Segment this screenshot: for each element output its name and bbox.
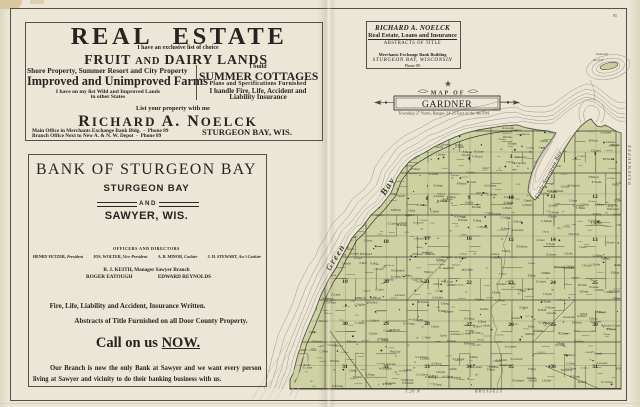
svg-text:R.Young: R.Young xyxy=(455,255,466,259)
svg-text:G.Fuller: G.Fuller xyxy=(466,171,475,174)
svg-text:F.Meyer: F.Meyer xyxy=(595,202,605,206)
svg-text:O.Lund: O.Lund xyxy=(354,257,362,260)
svg-text:G.Fuller: G.Fuller xyxy=(573,204,585,208)
svg-text:Wm.Gray: Wm.Gray xyxy=(515,155,528,159)
svg-text:M.Birch: M.Birch xyxy=(575,340,584,343)
svg-text:D.Ames: D.Ames xyxy=(350,252,360,256)
svg-text:T.Ryan: T.Ryan xyxy=(475,297,484,301)
svg-text:MAP OF: MAP OF xyxy=(431,90,466,96)
svg-text:Wm.Gray: Wm.Gray xyxy=(441,279,453,283)
svg-text:L.Marsh: L.Marsh xyxy=(490,256,501,260)
svg-text:D.Ames: D.Ames xyxy=(546,252,557,256)
svg-text:B.Frank: B.Frank xyxy=(580,290,589,293)
svg-text:D.Ames: D.Ames xyxy=(439,267,447,270)
svg-text:15: 15 xyxy=(508,237,514,243)
svg-text:C.Hahn: C.Hahn xyxy=(503,206,513,210)
svg-text:P.Nelson: P.Nelson xyxy=(457,183,467,186)
svg-text:B.Frank: B.Frank xyxy=(578,284,587,287)
svg-text:J.Doyle: J.Doyle xyxy=(369,332,379,336)
svg-text:D.Ames: D.Ames xyxy=(581,367,589,370)
svg-text:30: 30 xyxy=(592,322,598,328)
svg-text:E.Berg: E.Berg xyxy=(441,303,449,306)
svg-text:E.Stone: E.Stone xyxy=(503,130,512,133)
svg-text:C.Webb: C.Webb xyxy=(297,348,308,352)
svg-text:B.Frank: B.Frank xyxy=(310,231,320,234)
svg-text:33: 33 xyxy=(424,364,430,370)
svg-text:31: 31 xyxy=(342,364,348,370)
svg-text:S.Carlson: S.Carlson xyxy=(601,380,613,384)
svg-text:F.Meyer: F.Meyer xyxy=(412,168,421,171)
svg-text:N.Holt: N.Holt xyxy=(370,262,378,265)
svg-text:O.Lund: O.Lund xyxy=(511,317,520,320)
svg-text:G.Fuller: G.Fuller xyxy=(561,186,570,189)
svg-text:E.Stone: E.Stone xyxy=(546,243,555,246)
svg-text:A.Olson: A.Olson xyxy=(577,314,587,318)
svg-text:G.Fuller: G.Fuller xyxy=(336,145,346,149)
svg-text:40: 40 xyxy=(303,215,306,218)
svg-text:M.Birch: M.Birch xyxy=(390,328,401,332)
svg-text:A.Olson: A.Olson xyxy=(456,378,465,381)
svg-text:B.Frank: B.Frank xyxy=(341,172,350,175)
svg-text:A.Olson: A.Olson xyxy=(431,362,442,366)
svg-text:J.Kelly: J.Kelly xyxy=(579,246,587,249)
svg-text:T.Ryan: T.Ryan xyxy=(528,262,536,265)
svg-text:P.Nelson: P.Nelson xyxy=(572,321,582,324)
svg-text:B.Frank: B.Frank xyxy=(554,265,565,269)
svg-text:B.Frank: B.Frank xyxy=(603,157,613,161)
svg-text:P.Nelson: P.Nelson xyxy=(517,245,528,249)
svg-text:C.Hahn: C.Hahn xyxy=(300,203,309,206)
svg-text:E.Berg: E.Berg xyxy=(338,139,347,143)
svg-text:80: 80 xyxy=(330,151,333,154)
svg-text:13: 13 xyxy=(592,237,598,243)
svg-text:J.Doyle: J.Doyle xyxy=(431,326,440,329)
svg-text:4: 4 xyxy=(468,156,471,162)
svg-text:23: 23 xyxy=(508,280,514,286)
svg-text:J.Kelly: J.Kelly xyxy=(309,210,318,214)
svg-text:C.Hahn: C.Hahn xyxy=(498,138,506,141)
svg-text:R.Young: R.Young xyxy=(383,383,393,386)
svg-text:O.Lund: O.Lund xyxy=(529,380,538,383)
svg-text:W.Schmidt: W.Schmidt xyxy=(512,380,524,383)
svg-text:9: 9 xyxy=(468,195,471,201)
svg-text:P.Nelson: P.Nelson xyxy=(589,140,599,143)
svg-text:L.Marsh: L.Marsh xyxy=(541,219,552,223)
svg-text:G.Fuller: G.Fuller xyxy=(504,201,513,205)
svg-text:G.Fuller: G.Fuller xyxy=(342,263,351,266)
svg-text:GARDNER: GARDNER xyxy=(422,99,472,110)
svg-text:E.Berg: E.Berg xyxy=(611,271,620,275)
svg-text:25: 25 xyxy=(550,322,556,328)
svg-text:A.Greene: A.Greene xyxy=(438,142,451,146)
svg-text:C.Hahn: C.Hahn xyxy=(616,223,626,227)
svg-text:H.Kruse: H.Kruse xyxy=(374,140,383,143)
svg-text:E.Berg: E.Berg xyxy=(593,212,602,216)
svg-text:C.Hahn: C.Hahn xyxy=(404,369,413,372)
svg-text:B.Frank: B.Frank xyxy=(508,143,517,146)
svg-text:J.Smith: J.Smith xyxy=(477,339,485,342)
svg-text:O.Lund: O.Lund xyxy=(336,135,345,139)
svg-text:T.Ryan: T.Ryan xyxy=(399,222,407,225)
svg-text:E.Berg: E.Berg xyxy=(502,249,511,253)
svg-text:M.Birch: M.Birch xyxy=(316,258,327,262)
svg-text:L.Marsh: L.Marsh xyxy=(370,320,380,323)
svg-text:D.Ames: D.Ames xyxy=(315,235,324,238)
svg-text:O.Lund: O.Lund xyxy=(550,124,558,127)
svg-text:C.Hahn: C.Hahn xyxy=(487,193,497,197)
svg-text:32: 32 xyxy=(383,364,389,370)
svg-text:C.Webb: C.Webb xyxy=(525,288,534,291)
svg-text:N.Holt: N.Holt xyxy=(528,325,535,328)
svg-text:R.Young: R.Young xyxy=(615,263,626,267)
svg-text:C.Webb: C.Webb xyxy=(555,139,564,142)
svg-text:F.Meyer: F.Meyer xyxy=(324,312,332,315)
svg-text:J.Kelly: J.Kelly xyxy=(416,246,424,249)
svg-text:J.Kelly: J.Kelly xyxy=(543,230,551,233)
svg-text:J.Smith: J.Smith xyxy=(594,352,603,355)
svg-text:E.Stone: E.Stone xyxy=(447,340,456,343)
svg-text:C.Webb: C.Webb xyxy=(309,349,318,352)
svg-text:E.Stone: E.Stone xyxy=(557,342,566,345)
svg-text:R.Young: R.Young xyxy=(377,338,389,342)
svg-text:J.Doyle: J.Doyle xyxy=(499,363,509,367)
svg-text:C.Webb: C.Webb xyxy=(324,146,333,149)
svg-text:N.Holt: N.Holt xyxy=(538,308,547,312)
svg-text:R.Young: R.Young xyxy=(465,318,475,321)
svg-text:L.Marsh: L.Marsh xyxy=(603,225,612,228)
svg-text:E.Stone: E.Stone xyxy=(612,324,621,327)
svg-text:H.Kruse: H.Kruse xyxy=(474,149,484,153)
svg-text:T.Ryan: T.Ryan xyxy=(327,163,336,167)
svg-text:J.Kelly: J.Kelly xyxy=(408,210,416,213)
svg-text:A.Greene: A.Greene xyxy=(484,183,497,187)
svg-text:C.Webb: C.Webb xyxy=(495,299,505,303)
svg-text:R.Young: R.Young xyxy=(554,190,564,193)
svg-text:B.Frank: B.Frank xyxy=(347,339,357,343)
svg-text:Wm.Gray: Wm.Gray xyxy=(390,351,402,354)
svg-text:G.Fuller: G.Fuller xyxy=(402,153,411,156)
svg-text:26: 26 xyxy=(508,322,514,328)
svg-text:29: 29 xyxy=(383,321,389,327)
svg-text:C.Hahn: C.Hahn xyxy=(349,370,358,373)
svg-text:E.Berg: E.Berg xyxy=(528,368,536,371)
svg-text:E.Stone: E.Stone xyxy=(614,297,622,300)
svg-text:E.Berg: E.Berg xyxy=(430,374,439,378)
svg-text:E.Stone: E.Stone xyxy=(321,238,330,241)
svg-text:W.Schmidt: W.Schmidt xyxy=(402,382,414,385)
svg-text:S.Carlson: S.Carlson xyxy=(538,320,550,324)
svg-text:N.Holt: N.Holt xyxy=(473,326,481,329)
svg-text:J.Doyle: J.Doyle xyxy=(436,370,446,374)
svg-text:J.Kelly: J.Kelly xyxy=(582,264,591,268)
svg-text:Wm.Gray: Wm.Gray xyxy=(355,352,365,355)
svg-text:S.Carlson: S.Carlson xyxy=(514,161,527,165)
svg-text:M.Birch: M.Birch xyxy=(355,296,366,300)
svg-text:J.Doyle: J.Doyle xyxy=(543,292,552,296)
svg-text:27: 27 xyxy=(466,322,472,328)
svg-text:J.Smith: J.Smith xyxy=(524,199,533,202)
svg-text:M.Birch: M.Birch xyxy=(391,208,401,212)
svg-text:J.Kelly: J.Kelly xyxy=(564,251,573,255)
svg-text:E.Stone: E.Stone xyxy=(381,167,391,171)
svg-text:D.Ames: D.Ames xyxy=(480,308,489,311)
svg-text:B.Frank: B.Frank xyxy=(570,375,581,379)
svg-text:B.Frank: B.Frank xyxy=(330,359,340,363)
svg-text:G.Fuller: G.Fuller xyxy=(577,155,586,158)
svg-text:G.Fuller: G.Fuller xyxy=(522,203,532,207)
svg-text:O.Lund: O.Lund xyxy=(547,311,557,315)
svg-text:F.Meyer: F.Meyer xyxy=(325,159,335,163)
svg-text:J.Kelly: J.Kelly xyxy=(542,378,551,382)
svg-text:B.Frank: B.Frank xyxy=(369,139,379,143)
svg-text:8: 8 xyxy=(426,196,429,202)
svg-text:J.Doyle: J.Doyle xyxy=(364,240,373,243)
svg-text:J.Kelly: J.Kelly xyxy=(540,140,549,143)
svg-text:G.Fuller: G.Fuller xyxy=(566,362,575,365)
svg-text:L.Marsh: L.Marsh xyxy=(328,274,337,277)
svg-text:J.Doyle: J.Doyle xyxy=(433,282,443,286)
svg-text:A.Greene: A.Greene xyxy=(502,126,514,130)
svg-text:A.Olson: A.Olson xyxy=(459,253,468,256)
svg-text:36: 36 xyxy=(550,364,556,370)
svg-text:B.Frank: B.Frank xyxy=(360,252,371,256)
svg-text:H.Kruse: H.Kruse xyxy=(413,318,423,322)
svg-text:Wm.Gray: Wm.Gray xyxy=(401,378,414,382)
svg-text:A.Greene: A.Greene xyxy=(505,345,518,349)
svg-text:E.Berg: E.Berg xyxy=(322,296,331,300)
svg-text:H.Kruse: H.Kruse xyxy=(601,323,611,327)
svg-text:R.Young: R.Young xyxy=(418,300,429,304)
svg-text:D.Ames: D.Ames xyxy=(472,365,482,369)
svg-text:J.Smith: J.Smith xyxy=(449,368,458,371)
svg-text:C.Webb: C.Webb xyxy=(422,336,431,339)
svg-text:14: 14 xyxy=(550,237,556,243)
svg-text:C.Hahn: C.Hahn xyxy=(333,173,342,176)
svg-text:J.Kelly: J.Kelly xyxy=(440,335,448,338)
svg-text:E.Stone: E.Stone xyxy=(315,225,325,229)
svg-text:O.Lund: O.Lund xyxy=(331,293,341,297)
svg-text:G.Fuller: G.Fuller xyxy=(494,341,502,344)
svg-text:P.Nelson: P.Nelson xyxy=(464,341,476,345)
svg-text:1: 1 xyxy=(594,151,597,157)
svg-text:E.Berg: E.Berg xyxy=(447,195,456,199)
svg-text:30: 30 xyxy=(342,321,348,327)
svg-text:F.Meyer: F.Meyer xyxy=(545,306,557,310)
svg-text:A.Greene: A.Greene xyxy=(600,131,612,135)
svg-text:D.Ames: D.Ames xyxy=(536,280,547,284)
svg-text:B.Frank: B.Frank xyxy=(342,152,352,156)
svg-text:Snake Isd: Snake Isd xyxy=(596,52,608,56)
svg-text:L.Marsh: L.Marsh xyxy=(481,325,491,328)
svg-text:19: 19 xyxy=(342,279,348,285)
svg-text:G.Fuller: G.Fuller xyxy=(344,239,353,242)
svg-text:BRUSSELS: BRUSSELS xyxy=(475,389,503,394)
svg-text:C.Hahn: C.Hahn xyxy=(299,189,309,193)
svg-text:NASEWAUPEE: NASEWAUPEE xyxy=(627,144,632,186)
svg-text:J.Smith: J.Smith xyxy=(296,266,304,269)
svg-text:10: 10 xyxy=(508,195,514,201)
svg-text:11: 11 xyxy=(550,194,555,200)
svg-text:S.Carlson: S.Carlson xyxy=(455,283,465,286)
svg-text:A.Greene: A.Greene xyxy=(563,315,576,319)
svg-text:C.Webb: C.Webb xyxy=(501,215,511,219)
svg-text:B.Frank: B.Frank xyxy=(527,377,536,380)
svg-text:E.Stone: E.Stone xyxy=(515,128,524,131)
svg-text:E.Stone: E.Stone xyxy=(499,272,508,275)
svg-text:P.Nelson: P.Nelson xyxy=(616,367,628,371)
svg-text:N.Holt: N.Holt xyxy=(513,220,522,224)
svg-text:P.Nelson: P.Nelson xyxy=(367,300,378,304)
svg-text:N.Holt: N.Holt xyxy=(325,196,334,200)
svg-text:Wm.Gray: Wm.Gray xyxy=(387,122,398,125)
svg-text:22: 22 xyxy=(466,280,472,286)
svg-text:W.Schmidt: W.Schmidt xyxy=(413,222,424,225)
svg-text:F.Meyer: F.Meyer xyxy=(424,271,433,274)
svg-text:C.Webb: C.Webb xyxy=(320,351,329,354)
svg-text:28: 28 xyxy=(424,321,430,327)
svg-text:3: 3 xyxy=(510,154,513,160)
svg-text:A.Greene: A.Greene xyxy=(395,294,406,297)
svg-text:E.Berg: E.Berg xyxy=(360,262,368,265)
svg-text:R.Young: R.Young xyxy=(403,321,415,325)
svg-text:L.Marsh: L.Marsh xyxy=(496,358,507,362)
svg-text:E.Stone: E.Stone xyxy=(353,155,363,159)
svg-text:B.Frank: B.Frank xyxy=(541,299,552,303)
svg-text:G.Fuller: G.Fuller xyxy=(607,177,615,180)
svg-text:C.Webb: C.Webb xyxy=(565,264,575,268)
svg-text:R.Young: R.Young xyxy=(332,384,343,388)
svg-text:H.Kruse: H.Kruse xyxy=(349,191,359,194)
svg-text:25: 25 xyxy=(592,280,598,286)
svg-text:P.Nelson: P.Nelson xyxy=(312,339,323,343)
svg-text:Township 27 North, Ranges 24-: Township 27 North, Ranges 24-25 East of … xyxy=(398,111,490,117)
svg-text:B.Frank: B.Frank xyxy=(311,162,320,165)
svg-text:E.Stone: E.Stone xyxy=(569,200,578,203)
svg-text:J.Kelly: J.Kelly xyxy=(591,263,600,267)
svg-text:H.Kruse: H.Kruse xyxy=(564,283,572,286)
svg-text:W.Schmidt: W.Schmidt xyxy=(391,135,405,139)
svg-text:S.Carlson: S.Carlson xyxy=(371,297,382,300)
svg-text:G.Fuller: G.Fuller xyxy=(430,210,439,213)
svg-text:G.Fuller: G.Fuller xyxy=(408,130,418,134)
svg-text:W.Schmidt: W.Schmidt xyxy=(568,185,580,188)
svg-text:S.Carlson: S.Carlson xyxy=(441,255,453,259)
svg-text:E.Berg: E.Berg xyxy=(528,274,536,278)
svg-text:17: 17 xyxy=(424,236,430,242)
svg-text:F.Meyer: F.Meyer xyxy=(589,175,600,179)
svg-text:18: 18 xyxy=(383,239,389,245)
svg-text:S.Carlson: S.Carlson xyxy=(401,140,414,144)
svg-text:T.Ryan: T.Ryan xyxy=(309,331,317,334)
svg-text:A.Greene: A.Greene xyxy=(511,228,524,232)
svg-text:T.Ryan: T.Ryan xyxy=(597,311,605,314)
svg-text:S.Carlson: S.Carlson xyxy=(331,162,343,166)
svg-text:Wm.Gray: Wm.Gray xyxy=(476,191,488,195)
svg-text:B.Frank: B.Frank xyxy=(472,205,482,209)
svg-text:J.Smith: J.Smith xyxy=(366,120,376,124)
svg-text:J.Doyle: J.Doyle xyxy=(465,202,474,205)
svg-text:A.Greene: A.Greene xyxy=(451,333,462,336)
svg-text:31: 31 xyxy=(592,364,598,370)
svg-text:C.Hahn: C.Hahn xyxy=(526,147,534,150)
svg-text:85: 85 xyxy=(613,13,617,18)
svg-text:A.Olson: A.Olson xyxy=(565,367,576,371)
svg-text:S.Carlson: S.Carlson xyxy=(416,373,429,377)
svg-text:20: 20 xyxy=(383,279,389,285)
svg-text:24: 24 xyxy=(550,280,556,286)
svg-text:M.Birch: M.Birch xyxy=(525,333,535,336)
svg-text:J.Doyle: J.Doyle xyxy=(436,153,446,157)
svg-text:T.Ryan: T.Ryan xyxy=(603,333,611,336)
svg-text:A.Olson: A.Olson xyxy=(435,290,444,293)
svg-text:D.Ames: D.Ames xyxy=(549,205,558,208)
svg-text:G.Fuller: G.Fuller xyxy=(432,295,444,299)
svg-text:40: 40 xyxy=(313,219,316,222)
svg-text:O.Lund: O.Lund xyxy=(375,288,384,291)
svg-text:E.Berg: E.Berg xyxy=(473,219,482,223)
svg-text:12: 12 xyxy=(592,194,598,200)
svg-text:O.Lund: O.Lund xyxy=(447,284,456,287)
svg-text:34: 34 xyxy=(466,364,472,370)
svg-text:Sec.25 W: Sec.25 W xyxy=(593,59,604,62)
svg-text:J.Smith: J.Smith xyxy=(363,290,371,293)
svg-text:E.Berg: E.Berg xyxy=(434,383,442,387)
svg-text:T.26 N.: T.26 N. xyxy=(405,389,422,394)
svg-text:J.Doyle: J.Doyle xyxy=(548,215,558,219)
svg-text:E.Stone: E.Stone xyxy=(534,329,544,333)
svg-text:O.Lund: O.Lund xyxy=(537,239,546,242)
svg-text:80: 80 xyxy=(340,209,343,212)
svg-text:N.Holt: N.Holt xyxy=(376,214,383,217)
svg-text:E.Stone: E.Stone xyxy=(303,366,313,370)
svg-text:J.Doyle: J.Doyle xyxy=(605,241,615,245)
svg-text:W.Schmidt: W.Schmidt xyxy=(391,268,405,272)
svg-text:Wm.Gray: Wm.Gray xyxy=(327,344,338,347)
svg-text:E.Berg: E.Berg xyxy=(478,320,487,324)
svg-text:E.Stone: E.Stone xyxy=(318,232,326,235)
svg-text:D.Ames: D.Ames xyxy=(434,184,443,188)
svg-text:E.Stone: E.Stone xyxy=(417,203,427,207)
svg-text:E.Berg: E.Berg xyxy=(470,355,479,359)
svg-text:P.Nelson: P.Nelson xyxy=(497,283,507,286)
svg-text:E.Stone: E.Stone xyxy=(592,180,602,184)
svg-text:16: 16 xyxy=(466,236,472,242)
svg-text:S.Carlson: S.Carlson xyxy=(372,153,383,156)
svg-text:J.Doyle: J.Doyle xyxy=(475,156,484,159)
svg-text:J.Doyle: J.Doyle xyxy=(414,237,424,241)
svg-text:A.Greene: A.Greene xyxy=(597,362,608,365)
svg-text:C.Webb: C.Webb xyxy=(616,181,626,185)
svg-text:J.Kelly: J.Kelly xyxy=(606,205,614,208)
svg-text:J.Kelly: J.Kelly xyxy=(492,291,501,295)
svg-text:J.Doyle: J.Doyle xyxy=(318,319,328,323)
svg-text:O.Lund: O.Lund xyxy=(429,172,439,176)
svg-text:R.Young: R.Young xyxy=(366,374,376,377)
svg-text:F.Meyer: F.Meyer xyxy=(463,150,473,154)
svg-text:C.Webb: C.Webb xyxy=(455,146,465,149)
svg-text:Wm.Gray: Wm.Gray xyxy=(569,233,581,236)
svg-text:21: 21 xyxy=(424,279,430,285)
svg-text:L.Marsh: L.Marsh xyxy=(420,358,430,361)
svg-text:35: 35 xyxy=(508,364,514,370)
svg-text:C.Webb: C.Webb xyxy=(550,210,560,214)
svg-text:D.Ames: D.Ames xyxy=(444,310,453,314)
svg-text:S.Carlson: S.Carlson xyxy=(510,357,523,361)
svg-text:S.Carlson: S.Carlson xyxy=(604,140,616,144)
